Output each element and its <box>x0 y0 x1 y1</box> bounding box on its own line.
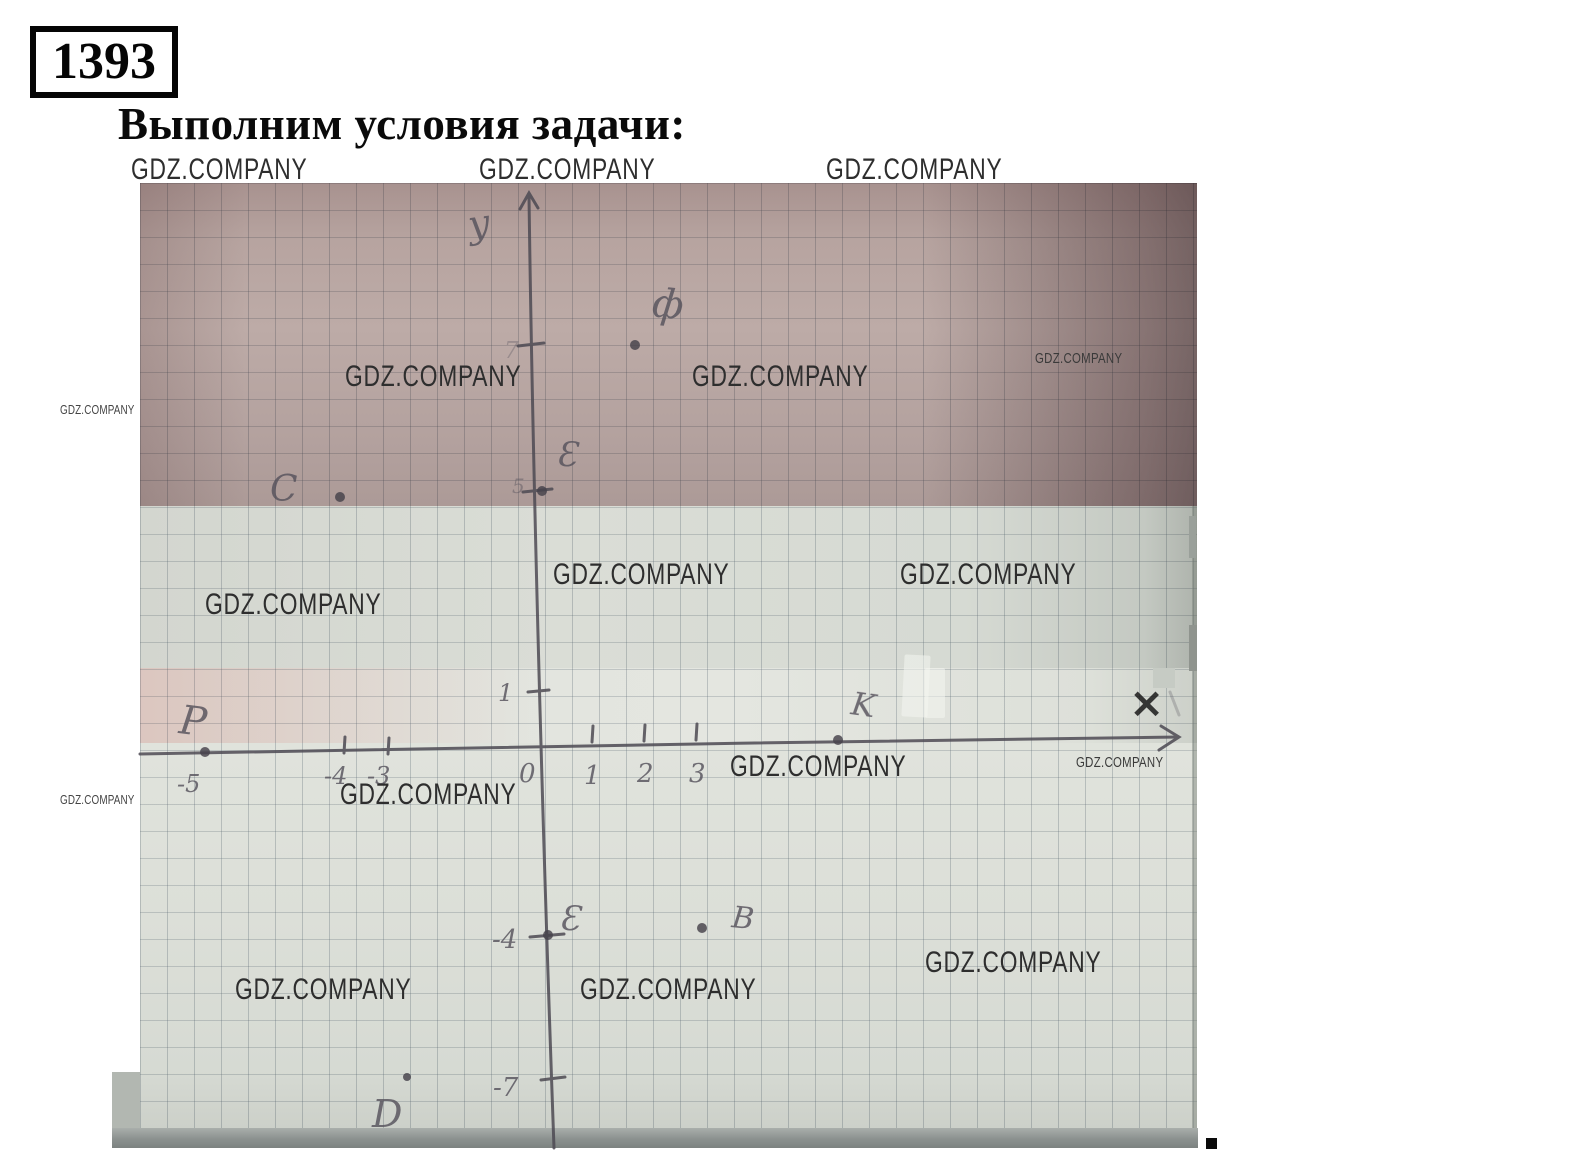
gdz-watermark: GDZ.COMPANY <box>900 558 1076 592</box>
gdz-watermark: GDZ.COMPANY <box>340 778 516 812</box>
gdz-watermark: GDZ.COMPANY <box>730 750 906 784</box>
gdz-watermark: GDZ.COMPANY <box>205 588 381 622</box>
gdz-watermark: GDZ.COMPANY <box>553 558 729 592</box>
gdz-watermark: GDZ.COMPANY <box>60 792 135 807</box>
gdz-watermark: GDZ.COMPANY <box>580 973 756 1007</box>
problem-number-box: 1393 <box>30 26 178 98</box>
photo-edge-mark <box>1189 625 1197 671</box>
gdz-watermark: GDZ.COMPANY <box>479 153 655 187</box>
gdz-watermark: GDZ.COMPANY <box>692 360 868 394</box>
photo-edge-mark <box>1189 516 1196 558</box>
page-title: Выполним условия задачи: <box>118 98 686 150</box>
trailing-period <box>1206 1138 1217 1149</box>
photo-bottom-left-tab <box>112 1072 140 1130</box>
gdz-watermark: GDZ.COMPANY <box>826 153 1002 187</box>
gdz-watermark: GDZ.COMPANY <box>60 402 135 417</box>
gdz-watermark: GDZ.COMPANY <box>345 360 521 394</box>
photo-edge-mark <box>1153 668 1175 688</box>
photo-right-edge <box>1192 506 1197 1128</box>
gdz-watermark: GDZ.COMPANY <box>925 946 1101 980</box>
correction-patch <box>925 668 945 718</box>
photo-bottom-strip <box>112 1128 1198 1148</box>
gdz-watermark: GDZ.COMPANY <box>235 973 411 1007</box>
problem-number: 1393 <box>52 33 156 90</box>
gdz-watermark: GDZ.COMPANY <box>131 153 307 187</box>
gdz-watermark: GDZ.COMPANY <box>1076 754 1163 771</box>
gdz-watermark: GDZ.COMPANY <box>1035 350 1122 367</box>
